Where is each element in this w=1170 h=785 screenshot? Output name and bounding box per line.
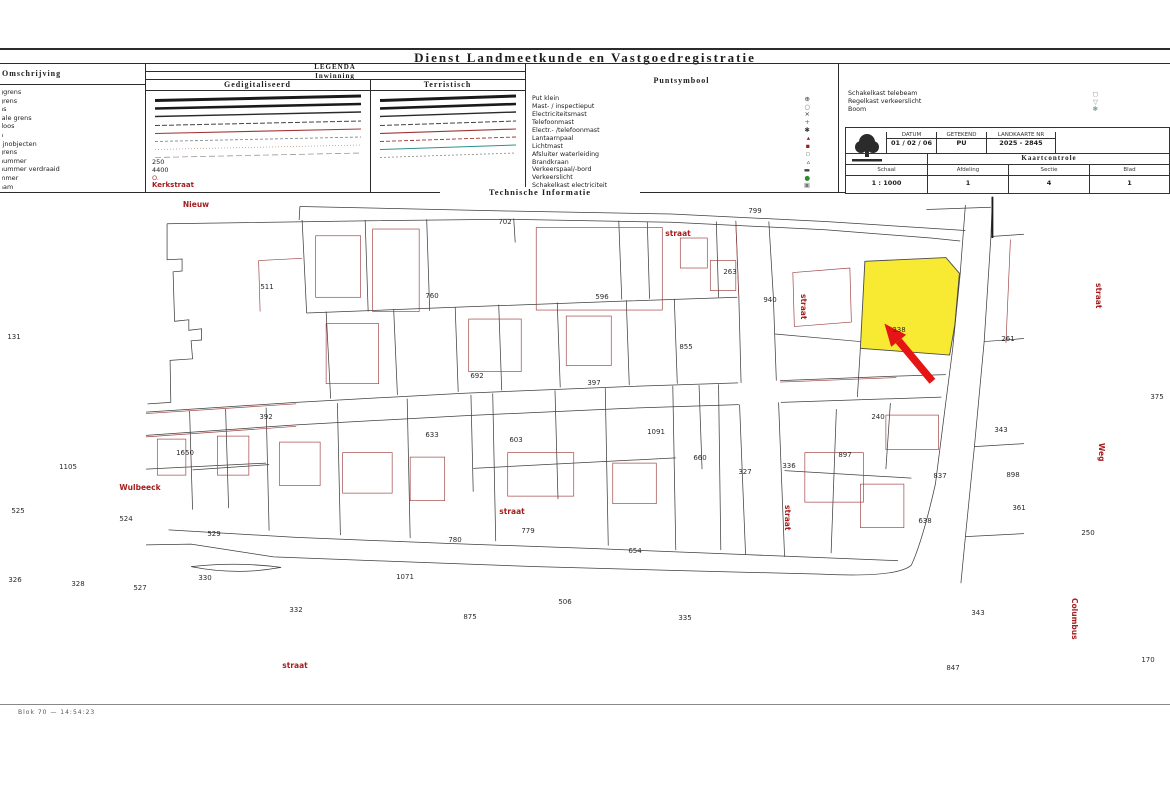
map-canvas: NieuwstraatstraatstraatWulbeeckstraatstr…: [0, 196, 1170, 785]
street-label: straat: [499, 507, 524, 516]
parcel-number: 392: [259, 413, 272, 421]
sectie-label: Sectie: [1009, 167, 1089, 173]
line-sample: [378, 94, 518, 102]
line-sample: [153, 135, 363, 143]
gedigitaliseerd-header: Gedigitaliseerd: [145, 80, 370, 89]
symbol-label: Regelkast verkeerslicht: [848, 98, 921, 105]
parcel-number: 799: [748, 207, 761, 215]
omschrijving-underline: [0, 84, 145, 85]
symbol-label: Electriciteitsmast: [532, 111, 587, 118]
symbol-row: Schakelkast telebeam◻: [848, 90, 1098, 98]
parcel-number: 898: [1006, 471, 1019, 479]
symbol-row: Electriciteitsmast×: [532, 111, 810, 119]
parcel-number: 527: [133, 584, 146, 592]
symbol-icon: ◻: [1093, 91, 1098, 98]
parcel-number: 332: [289, 606, 302, 614]
symbol-label: Verkeerslicht: [532, 174, 573, 181]
legend-item: ggrens: [2, 88, 144, 97]
parcel-number: 1105: [59, 463, 77, 471]
schaal-cell: Schaal 1 : 1000: [846, 165, 927, 194]
symbol-label: Electr.- /telefoonmast: [532, 127, 600, 134]
symbol-row: Brandkraan▵: [532, 158, 810, 166]
symbol-label: Brandkraan: [532, 159, 569, 166]
street-label: straat: [1094, 283, 1103, 308]
symbol-label: Put klein: [532, 95, 559, 102]
line-sample: [153, 127, 363, 135]
parcel-number: 529: [207, 530, 220, 538]
inwinning-header-rule: [145, 90, 525, 91]
map-labels: NieuwstraatstraatstraatWulbeeckstraatstr…: [0, 196, 1170, 785]
getekend-value: PU: [937, 139, 986, 147]
parcel-number: 780: [448, 536, 461, 544]
symbol-row: Lichtmast▪: [532, 142, 810, 150]
legend-item: rale grens: [2, 114, 144, 123]
puntsymbool-header: Puntsymbool: [525, 76, 838, 85]
symbol-icon: ×: [805, 111, 810, 118]
parcel-number: 633: [425, 431, 438, 439]
parcel-number: 1071: [396, 573, 414, 581]
line-sample: [153, 151, 363, 159]
blad-value: 1: [1090, 179, 1169, 187]
parcel-number: 343: [994, 426, 1007, 434]
symbol-icon: ▽: [1093, 99, 1098, 106]
symbol-label: Mast- / inspectieput: [532, 103, 594, 110]
parcel-number: 170: [1141, 656, 1154, 664]
symbol-label: Schakelkast telebeam: [848, 90, 917, 97]
parcel-number: 336: [782, 462, 795, 470]
symbol-row: Boom❃: [848, 106, 1098, 114]
afdeling-value: 1: [928, 179, 1008, 187]
symbol-icon: ○: [804, 104, 810, 111]
symbol-icon: ▪: [806, 143, 810, 150]
parcel-number: 240: [871, 413, 884, 421]
parcel-number: 654: [628, 547, 641, 555]
symbol-row: Verkeerslicht●: [532, 174, 810, 182]
symbol-icon: +: [805, 119, 810, 126]
line-sample: [378, 127, 518, 135]
legenda-heading: LEGENDA: [145, 63, 525, 71]
omschrijving-items: ggrensgrensnsrale grensdoosnlijnobjecten…: [2, 88, 144, 191]
symbol-label: Lichtmast: [532, 143, 563, 150]
line-sample: [378, 119, 518, 127]
symbol-icon: ▵: [807, 159, 810, 166]
parcel-number: 250: [1081, 529, 1094, 537]
line-sample: [153, 110, 363, 118]
parcel-number: 638: [918, 517, 931, 525]
parcel-number: 524: [119, 515, 132, 523]
parcel-number: 506: [558, 598, 571, 606]
parcel-number: 397: [587, 379, 600, 387]
line-sample: [378, 102, 518, 110]
parcel-number: 855: [679, 343, 692, 351]
parcel-number: 596: [595, 293, 608, 301]
landkaart-cell: LANDKAARTE NR 2025 - 2845: [986, 132, 1056, 153]
parcel-number: 1650: [176, 449, 194, 457]
legend-item: grens: [2, 148, 144, 157]
street-label: Weg: [1097, 443, 1106, 461]
plot-footer: Blok 70 — 14:54:23: [18, 709, 95, 716]
line-sample: [378, 110, 518, 118]
schaal-value: 1 : 1000: [846, 179, 927, 187]
symbol-label: Telefoonmast: [532, 119, 574, 126]
blad-label: Blad: [1090, 167, 1169, 173]
symbol-row: Lantaarnpaal▴: [532, 134, 810, 142]
parcel-number: 760: [425, 292, 438, 300]
symbol-icon: ▫: [806, 151, 810, 158]
street-label: Columbus: [1070, 598, 1079, 640]
parcel-number: 131: [7, 333, 20, 341]
legend-item: doos: [2, 122, 144, 131]
symbol-row: Telefoonmast+: [532, 119, 810, 127]
parcel-number: 603: [509, 436, 522, 444]
symbol-icon: ▬: [804, 167, 810, 174]
symbol-row: Put klein⊕: [532, 95, 810, 103]
parcel-number: 897: [838, 451, 851, 459]
parcel-number: 330: [198, 574, 211, 582]
sectie-cell: Sectie 4: [1008, 165, 1089, 194]
kasten-items: Schakelkast telebeam◻Regelkast verkeersl…: [848, 90, 1098, 114]
line-sample: [153, 143, 363, 151]
symbol-icon: ✱: [805, 127, 810, 134]
parcel-number: 1091: [647, 428, 665, 436]
line-sample: [153, 102, 363, 110]
symbol-icon: ❃: [1093, 106, 1098, 113]
legend-item: nummer: [2, 157, 144, 166]
symbol-label: Verkeerspaal/-bord: [532, 166, 592, 173]
street-label: straat: [799, 294, 808, 319]
line-sample: [153, 94, 363, 102]
parcel-number: 361: [1012, 504, 1025, 512]
symbol-row: Regelkast verkeerslicht▽: [848, 98, 1098, 106]
line-sample: [378, 143, 518, 151]
street-label: Wulbeeck: [119, 483, 160, 492]
datum-cell: DATUM 01 / 02 / 06: [886, 132, 936, 153]
line-sample: [153, 119, 363, 127]
parcel-number: 779: [521, 527, 534, 535]
parcel-number: 328: [71, 580, 84, 588]
legend-divider-2: [370, 79, 371, 192]
symbol-row: Mast- / inspectieput○: [532, 103, 810, 111]
parcel-number: 343: [971, 609, 984, 617]
legend-item: lijnobjecten: [2, 140, 144, 149]
symbol-icon: ●: [804, 175, 810, 182]
terrestrial-samples: [378, 94, 518, 160]
line-sample: [378, 151, 518, 159]
parcel-number: 847: [946, 664, 959, 672]
parcel-number: 335: [678, 614, 691, 622]
street-label: straat: [665, 229, 690, 238]
street-label: straat: [282, 661, 307, 670]
parcel-number: 702: [498, 218, 511, 226]
cadastral-map-sheet: Dienst Landmeetkunde en Vastgoedregistra…: [0, 0, 1170, 785]
parcel-number: 326: [8, 576, 21, 584]
parcel-number: 525: [11, 507, 24, 515]
legend-divider-4: [838, 63, 839, 192]
legend-item: nummer verdraaid: [2, 165, 144, 174]
puntsymbool-items: Put klein⊕Mast- / inspectieput○Electrici…: [532, 95, 810, 190]
symbol-row: Afsluiter waterleiding▫: [532, 150, 810, 158]
legend-item: n: [2, 131, 144, 140]
parcel-number: 875: [463, 613, 476, 621]
blad-cell: Blad 1: [1089, 165, 1169, 194]
symbol-label: Lantaarnpaal: [532, 135, 573, 142]
legend-item: ns: [2, 105, 144, 114]
symbol-icon: ▣: [804, 182, 810, 189]
parcel-number: 375: [1150, 393, 1163, 401]
parcel-number: 660: [693, 454, 706, 462]
symbol-label: Afsluiter waterleiding: [532, 151, 599, 158]
street-example: Kerkstraat: [152, 181, 194, 189]
parcel-number: 338: [892, 326, 905, 334]
parcel-number: 511: [260, 283, 273, 291]
map-bottom-rule: [0, 704, 1170, 705]
street-label: straat: [783, 505, 792, 530]
parcel-number: 837: [933, 472, 946, 480]
parcel-number: 261: [1001, 335, 1014, 343]
sectie-value: 4: [1009, 179, 1089, 187]
landkaart-value: 2025 - 2845: [987, 139, 1055, 147]
digitized-samples: [153, 94, 363, 160]
line-sample: [378, 135, 518, 143]
parcel-number: 327: [738, 468, 751, 476]
datum-value: 01 / 02 / 06: [887, 139, 936, 147]
afdeling-label: Afdeling: [928, 167, 1008, 173]
parcel-number: 263: [723, 268, 736, 276]
street-label: Nieuw: [183, 200, 209, 209]
legend-item: grens: [2, 97, 144, 106]
parcel-number: 940: [763, 296, 776, 304]
titleblock: DATUM 01 / 02 / 06 GETEKEND PU LANDKAART…: [845, 127, 1170, 194]
schaal-row: Schaal 1 : 1000 Afdeling 1 Sectie 4 Blad…: [846, 164, 1169, 194]
symbol-icon: ▴: [807, 135, 810, 142]
parcel-number: 692: [470, 372, 483, 380]
schaal-label: Schaal: [846, 167, 927, 173]
getekend-cell: GETEKEND PU: [936, 132, 986, 153]
symbol-row: Verkeerspaal/-bord▬: [532, 166, 810, 174]
legend-item: mmer: [2, 174, 144, 183]
symbol-label: Boom: [848, 106, 866, 113]
omschrijving-header: Omschrijving: [0, 69, 147, 78]
symbol-row: Electr.- /telefoonmast✱: [532, 127, 810, 135]
afdeling-cell: Afdeling 1: [927, 165, 1008, 194]
legend-item: aam: [2, 183, 144, 192]
terristisch-header: Terristisch: [370, 80, 525, 89]
symbol-icon: ⊕: [805, 96, 810, 103]
